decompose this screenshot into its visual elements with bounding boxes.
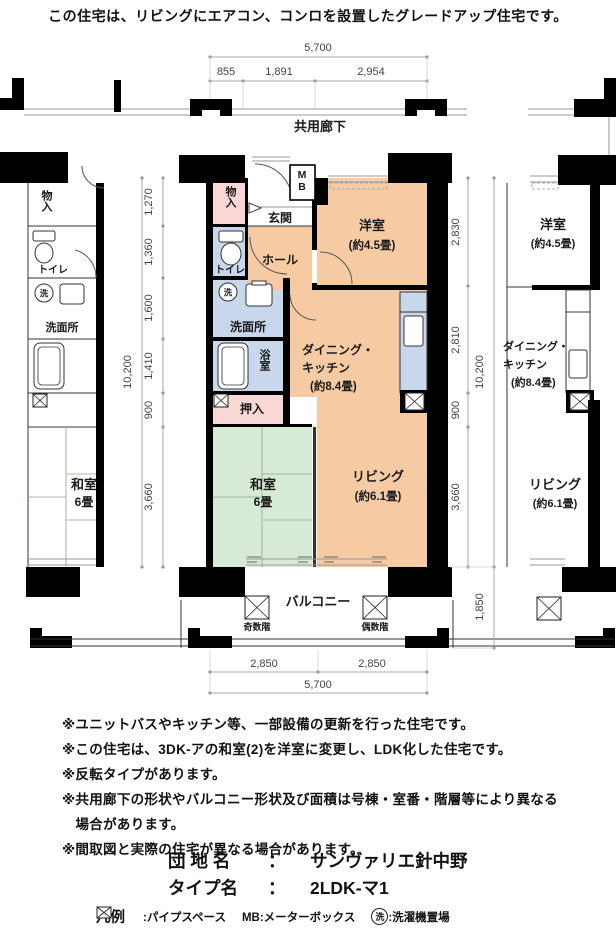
storage-label: 物入 [224, 185, 237, 209]
toilet-tank-icon [219, 231, 243, 242]
property-info: 団 地 名 ： サンヴァリエ針中野 タイプ名 ： 2LDK-マ1 [168, 847, 468, 901]
dim-right-balcony: 1,850 [474, 593, 486, 621]
dim-left-seg-3: 1,600 [143, 294, 155, 322]
dim-left-seg-1: 1,270 [143, 188, 155, 216]
left-toilet-bowl-icon [35, 243, 53, 263]
dk-size: (約8.4畳) [310, 379, 357, 393]
living-size: (約6.1畳) [355, 489, 402, 503]
balcony-pipe-space-odd-icon [245, 596, 269, 619]
kitchen-sink-icon [404, 316, 423, 346]
left-dimensions: 1,270 1,360 1,600 1,410 900 3,660 10,200 [122, 176, 165, 568]
left-toilet-tank-icon [33, 231, 55, 241]
note-line: ※反転タイプがあります。 [62, 762, 568, 787]
estate-name-label: 団 地 名 [168, 848, 268, 873]
legend-pipe-space: :パイプスペース [143, 909, 226, 925]
dk-label-1: ダイニング・ [302, 342, 374, 357]
western-label: 洋室 [359, 218, 385, 233]
toilet-label: トイレ [215, 264, 245, 276]
bottom-dimensions: 2,850 2,850 5,700 [208, 650, 428, 695]
notes-section: ※ユニットバスやキッチン等、一部設備の更新を行った住宅です。 ※この住宅は、3D… [62, 712, 568, 862]
right-unit-living-size: (約6.1畳) [533, 496, 578, 510]
legend-meter-box-label: MB:メーターボックス [242, 909, 355, 925]
right-dimensions: 2,830 2,810 900 3,660 10,200 1,850 [450, 176, 496, 649]
dim-left-total: 10,200 [122, 355, 134, 389]
right-unit-living-label: リビング [529, 477, 581, 492]
type-name-label: タイプ名 [168, 875, 268, 900]
storage-door-mark [249, 203, 261, 213]
right-unit: 洋室 (約4.5畳) ダイニング・ キッチン (約8.4畳) リビング (約6.… [503, 78, 616, 648]
dim-top-seg-3: 2,954 [357, 66, 385, 78]
dk-label-2: キッチン [302, 361, 350, 375]
type-name-value: 2LDK-マ1 [310, 875, 389, 900]
laundry-symbol: 洗 [224, 288, 233, 298]
dim-top-seg-1: 855 [217, 66, 235, 78]
estate-name-row: 団 地 名 ： サンヴァリエ針中野 [168, 847, 468, 874]
closet-pipe-space-icon [214, 394, 228, 407]
dim-right-seg-1: 2,830 [450, 218, 462, 246]
bath-label: 浴室 [258, 348, 271, 371]
washroom-label: 洗面所 [230, 319, 266, 334]
right-unit-dk-size: (約8.4畳) [511, 375, 556, 389]
corridor-label: 共用廊下 [294, 119, 346, 134]
legend-meter-box: MB:メーターボックス [242, 909, 355, 925]
dim-right-total: 10,200 [474, 355, 486, 389]
left-laundry-symbol: 洗 [40, 289, 49, 299]
note-line: ※この住宅は、3DK-アの和室(2)を洋室に変更し、LDK化した住宅です。 [62, 737, 568, 762]
meter-box-label: MB [296, 169, 308, 193]
hall-label: ホール [262, 253, 298, 267]
dim-top-seg-2: 1,891 [265, 66, 293, 78]
left-washbasin-icon [60, 284, 84, 304]
meter-box: MB [290, 165, 315, 200]
odd-floors-label: 奇数階 [243, 621, 270, 632]
room-western [317, 178, 427, 290]
right-unit-dk-label-2: キッチン [503, 358, 547, 371]
legend: 凡例 :パイプスペース MB:メーターボックス 洗 :洗濯機置場 [96, 906, 466, 927]
legend-laundry: 洗 :洗濯機置場 [371, 908, 449, 925]
dim-left-seg-2: 1,360 [143, 238, 155, 266]
washbasin-icon [246, 284, 272, 306]
even-floors-label: 偶数階 [361, 621, 388, 632]
dim-right-seg-3: 900 [450, 401, 462, 419]
dim-bottom-total: 5,700 [304, 679, 332, 691]
left-unit-tatami-label: 和室 [71, 477, 97, 492]
laundry-place-icon: 洗 [371, 908, 388, 925]
dim-left-seg-6: 3,660 [143, 483, 155, 511]
right-unit-dk-label-1: ダイニング・ [503, 339, 569, 353]
type-name-row: タイプ名 ： 2LDK-マ1 [168, 874, 468, 901]
floor-plan-page: この住宅は、リビングにエアコン、コンロを設置したグレードアップ住宅です。 5,7… [0, 0, 616, 934]
dim-left-seg-5: 900 [143, 401, 155, 419]
tatami-size: 6畳 [254, 495, 273, 509]
dim-top-total: 5,700 [304, 42, 332, 54]
dim-right-seg-4: 3,660 [450, 483, 462, 511]
left-unit-washroom-label: 洗面所 [46, 320, 79, 334]
type-name-separator: ： [268, 875, 310, 900]
dim-bottom-seg-2: 2,850 [358, 658, 386, 670]
living-label: リビング [352, 469, 404, 484]
legend-pipe-space-label: :パイプスペース [143, 909, 226, 925]
left-unit-storage-label: 物入 [40, 189, 53, 213]
balcony: バルコニー 奇数階 偶数階 [30, 594, 614, 648]
note-line: ※ユニットバスやキッチン等、一部設備の更新を行った住宅です。 [62, 712, 568, 737]
right-unit-western-size: (約4.5畳) [531, 236, 576, 250]
right-unit-western-label: 洋室 [540, 217, 566, 232]
washbasin-faucet-icon [252, 281, 266, 285]
left-unit-tatami-size: 6畳 [75, 495, 94, 509]
right-balcony-pipe-space-icon [537, 597, 561, 620]
left-unit-toilet-label: トイレ [38, 264, 68, 276]
dim-left-seg-4: 1,410 [143, 352, 155, 380]
pipe-space-icon [96, 906, 112, 919]
toilet-bowl-icon [221, 243, 241, 265]
note-line: ※共用廊下の形状やバルコニー形状及び面積は号棟・室番・階層等により異なる場合があ… [62, 787, 568, 837]
balcony-label: バルコニー [286, 594, 351, 609]
dim-right-seg-2: 2,810 [450, 326, 462, 354]
common-corridor: 共用廊下 [0, 78, 616, 155]
estate-name-separator: ： [268, 848, 310, 873]
estate-name-value: サンヴァリエ針中野 [310, 848, 468, 873]
closet-label: 押入 [240, 401, 264, 416]
dim-bottom-seg-1: 2,850 [250, 658, 278, 670]
balcony-pipe-space-even-icon [363, 596, 387, 619]
left-pipe-space-icon [33, 394, 47, 407]
floor-plan-drawing: 5,700 855 1,891 2,954 [0, 0, 616, 700]
entrance-label: 玄関 [268, 210, 292, 225]
top-dimensions: 5,700 855 1,891 2,954 [208, 42, 428, 108]
tatami-label: 和室 [250, 477, 276, 492]
left-unit: 物入 トイレ 洗 洗面所 和室 6畳 [0, 152, 104, 648]
legend-laundry-label: :洗濯機置場 [388, 909, 449, 925]
western-size: (約4.5畳) [349, 238, 396, 252]
dk-pipe-space-icon [400, 390, 428, 413]
